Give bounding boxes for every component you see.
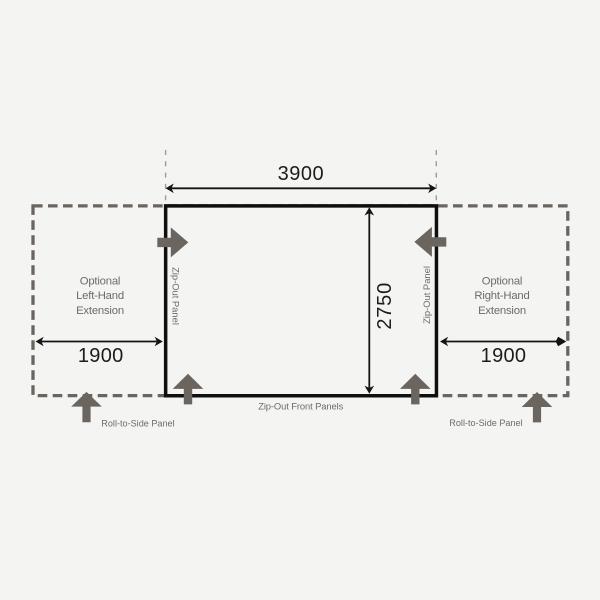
svg-text:Left-Hand: Left-Hand <box>76 290 124 302</box>
svg-text:Zip-Out Panel: Zip-Out Panel <box>171 267 182 325</box>
svg-text:Roll-to-Side Panel: Roll-to-Side Panel <box>101 418 174 428</box>
svg-text:1900: 1900 <box>481 345 527 367</box>
svg-text:Zip-Out Front Panels: Zip-Out Front Panels <box>258 401 343 412</box>
svg-text:Optional: Optional <box>482 275 522 287</box>
svg-text:Extension: Extension <box>76 305 124 317</box>
svg-text:3900: 3900 <box>278 163 325 185</box>
svg-text:Right-Hand: Right-Hand <box>474 290 529 302</box>
svg-text:Optional: Optional <box>80 275 120 287</box>
svg-text:Roll-to-Side Panel: Roll-to-Side Panel <box>449 418 522 428</box>
svg-text:1900: 1900 <box>78 345 124 367</box>
svg-text:2750: 2750 <box>374 282 396 330</box>
svg-text:Extension: Extension <box>478 305 526 317</box>
svg-text:Zip-Out Panel: Zip-Out Panel <box>421 266 432 324</box>
